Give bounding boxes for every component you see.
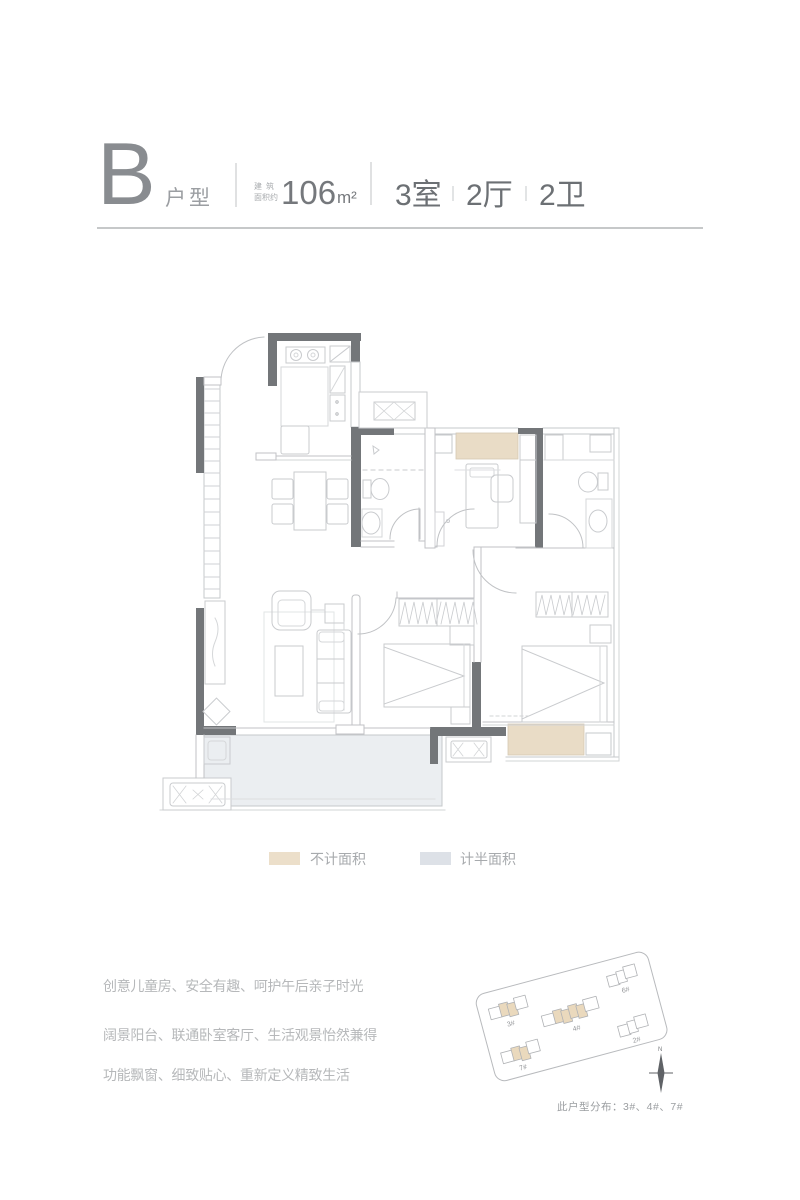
svg-text:2厅: 2厅 bbox=[466, 179, 513, 212]
svg-text:此户型分布：3#、4#、7#: 此户型分布：3#、4#、7# bbox=[557, 1100, 683, 1113]
svg-text:阔景阳台、联通卧室客厅、生活观景怡然兼得: 阔景阳台、联通卧室客厅、生活观景怡然兼得 bbox=[103, 1027, 377, 1043]
svg-text:6#: 6# bbox=[621, 986, 630, 995]
svg-text:3室: 3室 bbox=[395, 179, 442, 212]
svg-text:计半面积: 计半面积 bbox=[460, 851, 516, 867]
svg-text:N: N bbox=[658, 1047, 662, 1053]
svg-text:创意儿童房、安全有趣、呵护午后亲子时光: 创意儿童房、安全有趣、呵护午后亲子时光 bbox=[103, 978, 364, 994]
svg-text:建筑: 建筑 bbox=[254, 181, 278, 191]
svg-text:m²: m² bbox=[337, 188, 357, 207]
svg-text:2卫: 2卫 bbox=[539, 179, 586, 212]
svg-text:106: 106 bbox=[281, 174, 336, 211]
svg-text:功能飘窗、细致贴心、重新定义精致生活: 功能飘窗、细致贴心、重新定义精致生活 bbox=[103, 1067, 350, 1083]
svg-text:4#: 4# bbox=[572, 1024, 581, 1033]
svg-text:3#: 3# bbox=[506, 1020, 515, 1029]
svg-text:不计面积: 不计面积 bbox=[310, 851, 366, 867]
svg-text:面积约: 面积约 bbox=[254, 192, 278, 202]
svg-text:7#: 7# bbox=[519, 1064, 528, 1073]
svg-text:B: B bbox=[97, 124, 156, 223]
svg-text:户型: 户型 bbox=[165, 187, 213, 210]
svg-text:2#: 2# bbox=[632, 1036, 641, 1045]
